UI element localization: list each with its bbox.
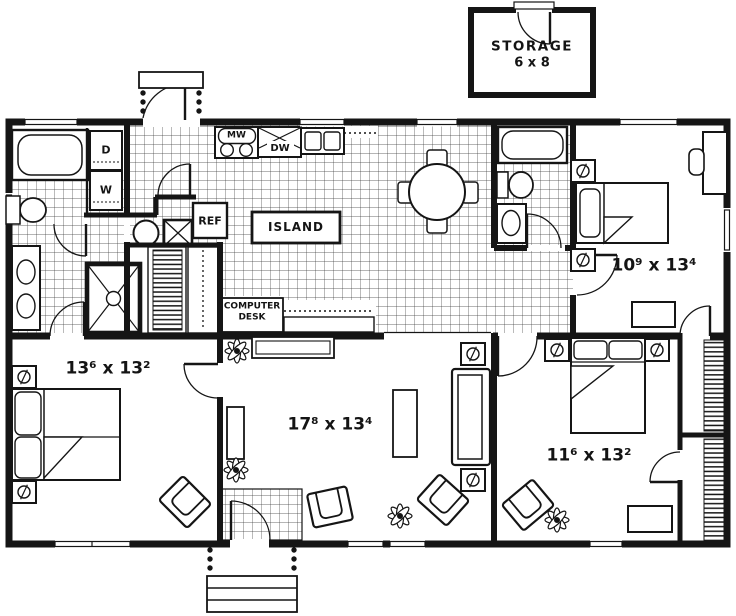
bedroom-bottom-right	[502, 338, 672, 532]
pillow	[15, 437, 41, 478]
side-table	[227, 407, 244, 459]
window	[590, 540, 622, 549]
kitchen-sink	[301, 128, 344, 154]
pillow	[15, 392, 41, 435]
deck-landing	[139, 72, 203, 88]
laundry-closet	[87, 128, 122, 214]
furnace-box	[164, 220, 192, 246]
window	[723, 208, 732, 252]
pillow	[574, 341, 607, 359]
dining-table	[409, 164, 465, 220]
bedroom-bottom-right-door	[498, 336, 537, 376]
dresser	[628, 506, 672, 532]
front-steps	[207, 547, 297, 612]
bedroom-top-right-dims: 10⁹ x 13⁴	[611, 258, 696, 275]
end-table	[461, 469, 485, 491]
dresser	[632, 302, 675, 327]
computer-desk-label-2: DESK	[238, 314, 265, 323]
window	[348, 540, 383, 549]
desk	[703, 132, 727, 194]
plant	[545, 508, 569, 532]
storage-label: STORAGE	[491, 40, 573, 54]
refrigerator-label: REF	[198, 216, 222, 227]
armchair	[307, 486, 353, 528]
storage-door-threshold	[514, 2, 554, 9]
nightstand	[571, 249, 595, 271]
toilet-left-tank	[6, 196, 20, 224]
pillow	[609, 341, 642, 359]
pillow	[580, 189, 600, 237]
closet-top-door	[680, 306, 710, 336]
computer-desk-label-1: COMPUTER	[224, 303, 280, 312]
front-door-opening	[230, 539, 269, 549]
closet-rod-hatch	[704, 340, 726, 431]
plant	[225, 339, 249, 363]
bedroom-left-door	[184, 364, 218, 398]
window	[300, 118, 344, 127]
desk-chair	[689, 149, 704, 175]
nightstand	[545, 339, 569, 361]
plant	[224, 458, 248, 482]
water-heater	[134, 221, 159, 246]
dryer-label: D	[101, 145, 110, 156]
island-label: ISLAND	[268, 221, 324, 233]
coffee-table	[393, 390, 417, 457]
window	[417, 118, 457, 127]
window	[25, 118, 77, 127]
floor-plan	[0, 0, 736, 616]
nightstand	[12, 481, 36, 503]
window	[620, 118, 677, 127]
toilet-right-tank	[497, 172, 508, 198]
bed-double	[571, 338, 645, 433]
end-table	[461, 343, 485, 365]
armchair	[502, 479, 554, 531]
porch-posts	[207, 547, 296, 570]
nightstand	[12, 366, 36, 388]
entry-tile	[222, 489, 302, 540]
shower	[87, 264, 140, 333]
nightstand	[571, 160, 595, 182]
bedroom-left-dims: 13⁶ x 13²	[65, 361, 150, 378]
floor-plan-page: STORAGE 6 x 8 D W MW DW REF ISLAND COMPU…	[0, 0, 736, 616]
plant	[388, 504, 412, 528]
closets-right	[704, 340, 726, 541]
toilet-right	[509, 172, 533, 198]
back-door	[143, 84, 185, 120]
hall-closets	[148, 247, 218, 333]
bedroom-bottom-right-dims: 11⁶ x 13²	[546, 448, 631, 465]
microwave-label: MW	[227, 132, 246, 141]
sofa	[452, 369, 490, 465]
living-room-dims: 17⁸ x 13⁴	[287, 417, 372, 434]
bed-single	[576, 183, 668, 243]
closet-rod-hatch	[153, 250, 182, 330]
bedroom-left	[12, 366, 211, 528]
armchair	[159, 476, 211, 528]
closet-rod-hatch	[704, 439, 726, 541]
bed-double	[12, 389, 120, 480]
dishwasher-label: DW	[270, 144, 289, 154]
washer-label: W	[100, 185, 112, 196]
sofa-table	[252, 337, 334, 358]
storage-size-label: 6 x 8	[514, 57, 550, 70]
window	[55, 540, 130, 549]
bedroom-top-right	[571, 132, 727, 327]
toilet-left	[20, 198, 46, 222]
steps	[207, 576, 297, 612]
window	[390, 540, 425, 549]
closet-bottom-door	[650, 452, 680, 482]
nightstand	[645, 339, 669, 361]
back-door-opening	[143, 117, 200, 127]
back-deck	[139, 72, 203, 114]
